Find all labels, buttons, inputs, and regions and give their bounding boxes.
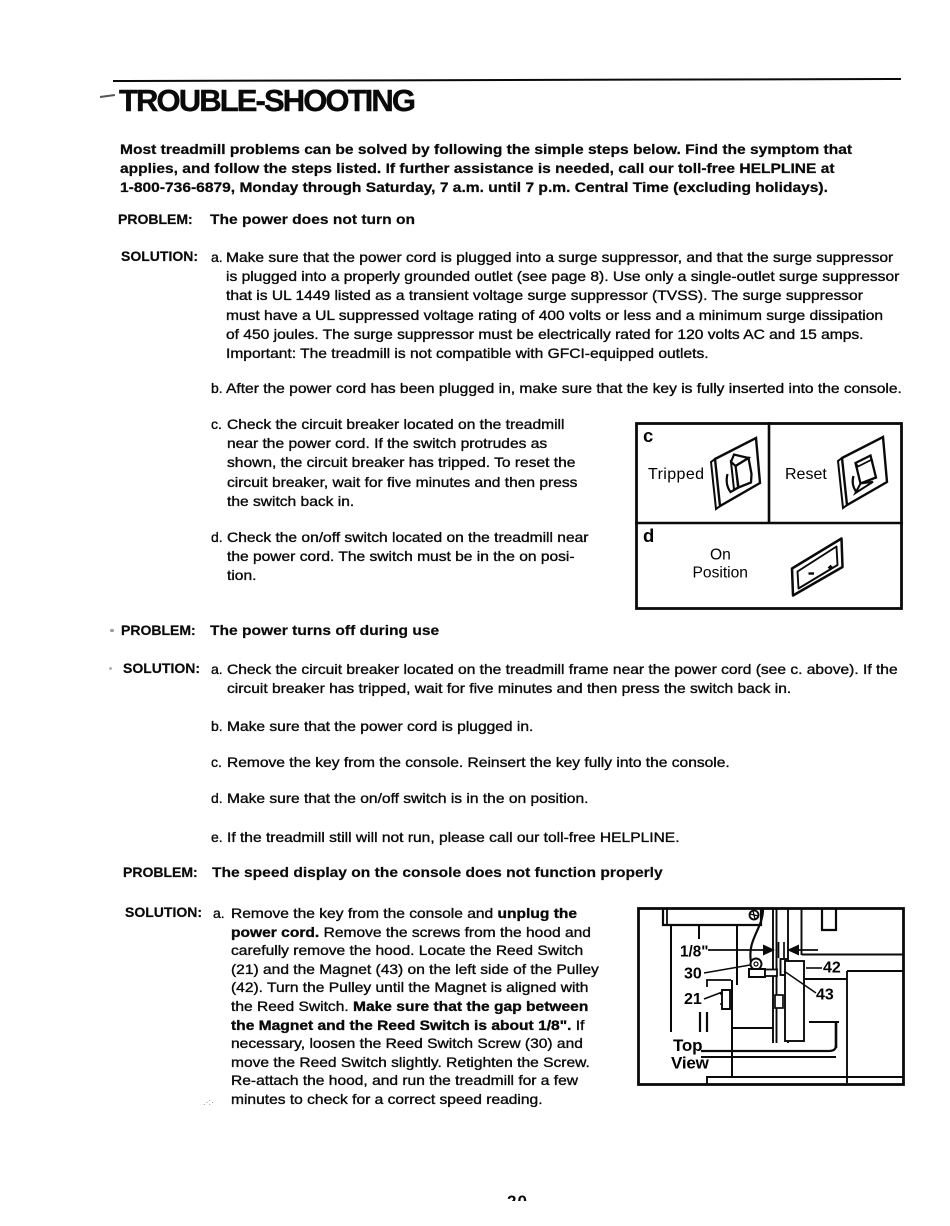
svg-text:c: c xyxy=(643,425,653,446)
svg-text:Position: Position xyxy=(693,565,748,582)
svg-text:21: 21 xyxy=(684,991,702,1008)
svg-text:View: View xyxy=(671,1054,710,1073)
svg-text:d: d xyxy=(643,525,654,546)
svg-text:Reset: Reset xyxy=(785,466,827,483)
svg-text:Top: Top xyxy=(673,1036,702,1055)
svg-text:43: 43 xyxy=(816,987,834,1004)
svg-text:On: On xyxy=(710,547,731,564)
svg-text:Tripped: Tripped xyxy=(648,466,704,483)
svg-text:30: 30 xyxy=(684,966,702,983)
svg-text:42: 42 xyxy=(823,960,841,977)
svg-text:1/8": 1/8" xyxy=(680,944,709,961)
